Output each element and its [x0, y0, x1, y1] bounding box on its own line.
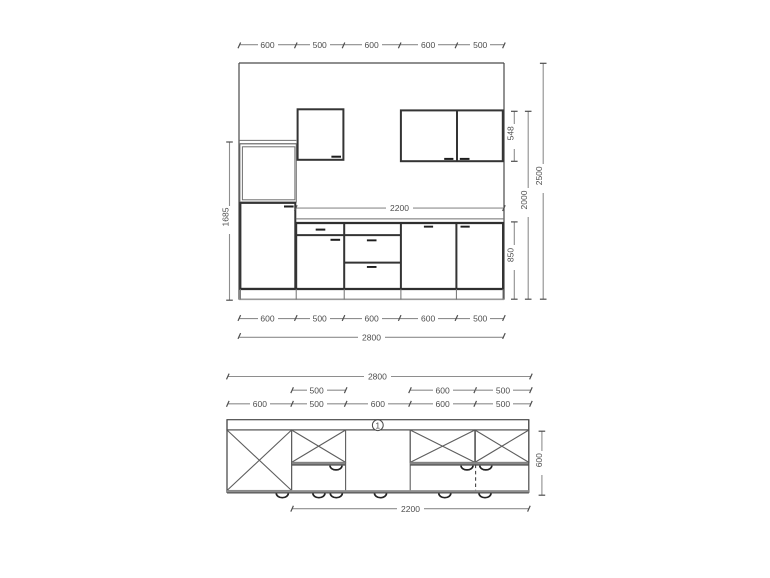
svg-text:2200: 2200	[401, 504, 420, 514]
svg-text:500: 500	[473, 40, 487, 50]
svg-text:500: 500	[310, 385, 324, 395]
svg-text:600: 600	[253, 399, 267, 409]
svg-text:600: 600	[421, 314, 435, 324]
svg-text:1685: 1685	[221, 207, 231, 226]
svg-text:2200: 2200	[390, 203, 409, 213]
svg-text:500: 500	[310, 399, 324, 409]
svg-text:548: 548	[505, 126, 515, 140]
svg-text:600: 600	[371, 399, 385, 409]
svg-text:600: 600	[260, 40, 274, 50]
svg-text:500: 500	[313, 314, 327, 324]
svg-text:2800: 2800	[368, 372, 387, 382]
svg-text:600: 600	[260, 314, 274, 324]
svg-text:500: 500	[496, 399, 510, 409]
svg-text:500: 500	[496, 385, 510, 395]
svg-text:850: 850	[505, 248, 515, 262]
svg-text:2800: 2800	[362, 332, 381, 342]
svg-text:600: 600	[365, 40, 379, 50]
svg-text:2500: 2500	[534, 166, 544, 185]
svg-text:500: 500	[473, 314, 487, 324]
svg-text:600: 600	[436, 399, 450, 409]
svg-text:500: 500	[313, 40, 327, 50]
svg-text:600: 600	[534, 453, 544, 467]
svg-text:600: 600	[365, 314, 379, 324]
svg-text:1: 1	[375, 421, 380, 431]
svg-text:600: 600	[436, 385, 450, 395]
svg-text:600: 600	[421, 40, 435, 50]
svg-text:2000: 2000	[519, 190, 529, 209]
